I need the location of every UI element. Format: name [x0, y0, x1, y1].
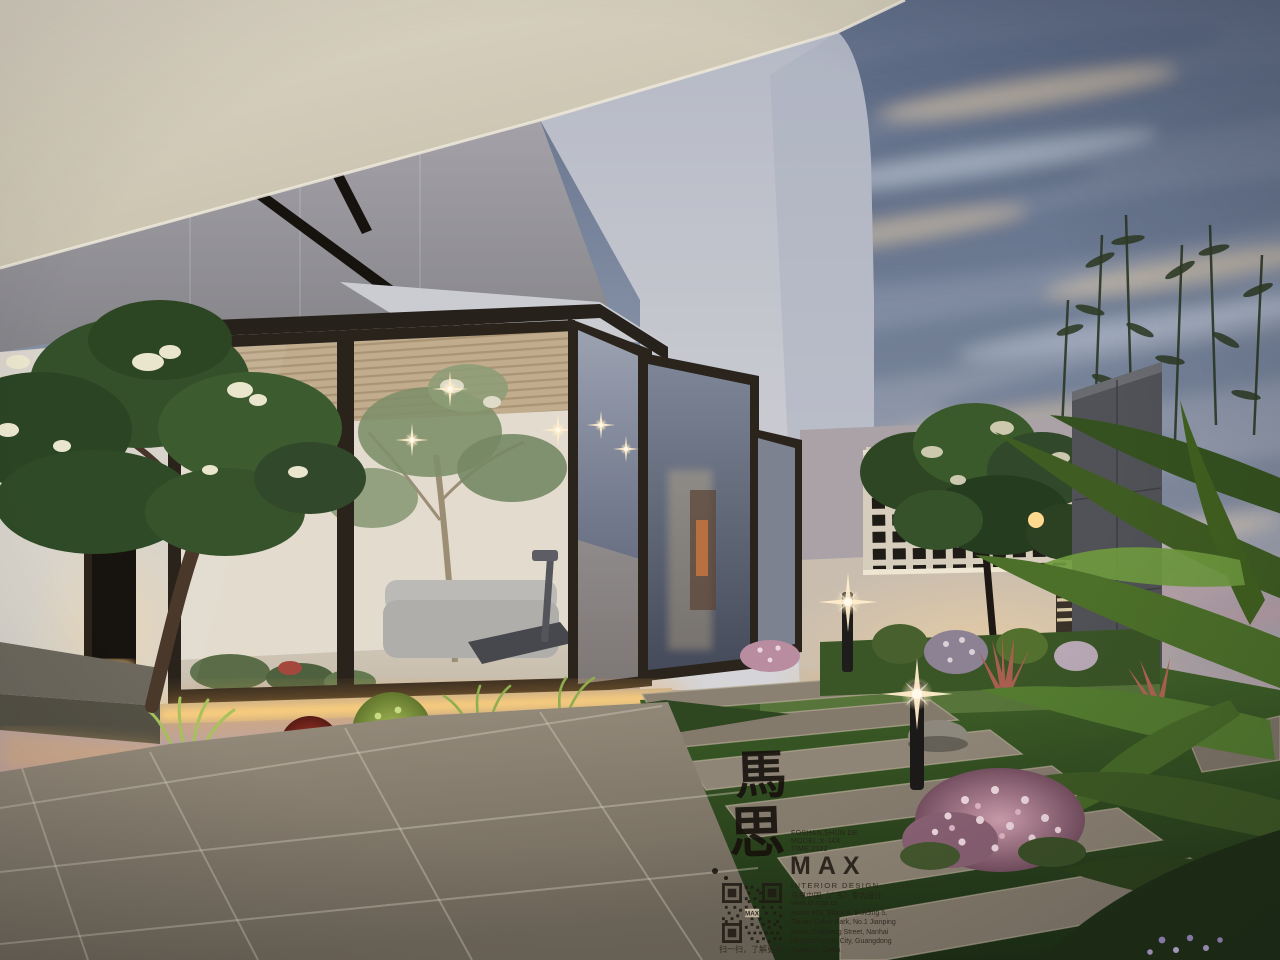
entry-doorway — [84, 536, 136, 672]
rendering-canvas: 馬 思 FOSHAN,SHUN DE MODEL:X-14X TIME:2022… — [0, 0, 1280, 960]
scene-illustration — [0, 0, 1280, 960]
